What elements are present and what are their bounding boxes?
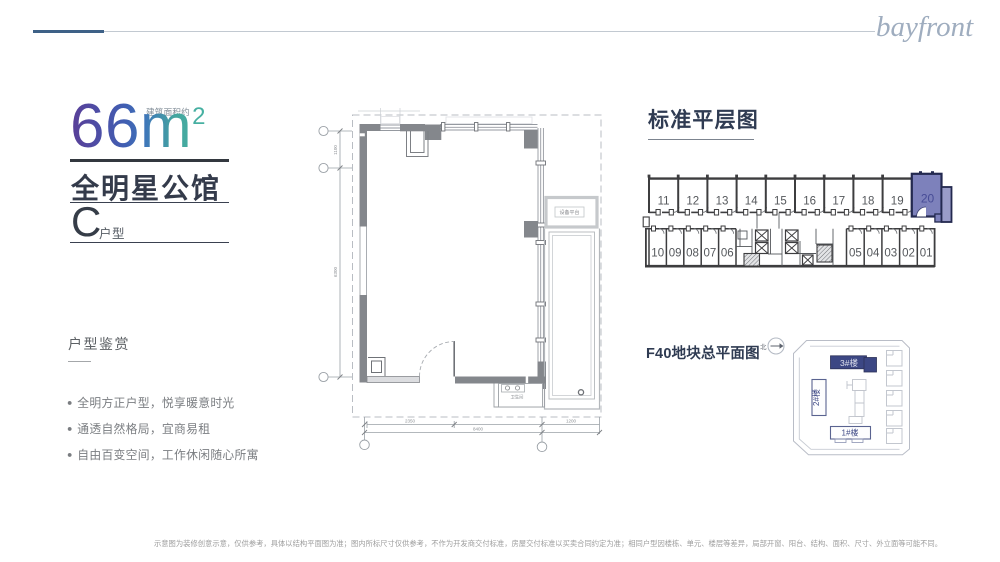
svg-text:18: 18 xyxy=(862,196,875,208)
svg-text:6300: 6300 xyxy=(333,266,338,277)
svg-text:1200: 1200 xyxy=(566,419,577,424)
svg-text:1100: 1100 xyxy=(333,145,338,155)
svg-text:03: 03 xyxy=(884,248,897,260)
svg-text:13: 13 xyxy=(716,196,729,208)
svg-text:8400: 8400 xyxy=(473,427,484,432)
svg-text:16: 16 xyxy=(803,196,816,208)
svg-text:09: 09 xyxy=(669,248,682,260)
svg-text:1#楼: 1#楼 xyxy=(842,428,859,438)
svg-text:04: 04 xyxy=(867,248,880,260)
svg-text:20: 20 xyxy=(921,192,935,206)
svg-text:01: 01 xyxy=(920,248,933,260)
svg-text:11: 11 xyxy=(658,196,670,208)
svg-text:15: 15 xyxy=(774,196,787,208)
svg-text:12: 12 xyxy=(686,196,699,208)
svg-text:3#楼: 3#楼 xyxy=(840,358,858,368)
svg-text:08: 08 xyxy=(686,248,699,260)
svg-text:02: 02 xyxy=(902,248,915,260)
svg-text:设备平台: 设备平台 xyxy=(559,209,579,216)
svg-text:北: 北 xyxy=(760,343,767,351)
svg-text:19: 19 xyxy=(891,196,904,208)
svg-text:07: 07 xyxy=(704,248,717,260)
svg-text:卫生间: 卫生间 xyxy=(511,394,524,401)
svg-text:06: 06 xyxy=(721,248,734,260)
svg-text:05: 05 xyxy=(849,248,862,260)
svg-text:2#楼: 2#楼 xyxy=(811,389,821,406)
svg-text:2350: 2350 xyxy=(405,419,416,424)
svg-text:17: 17 xyxy=(832,196,845,208)
svg-text:14: 14 xyxy=(745,196,758,208)
svg-text:10: 10 xyxy=(651,248,664,260)
